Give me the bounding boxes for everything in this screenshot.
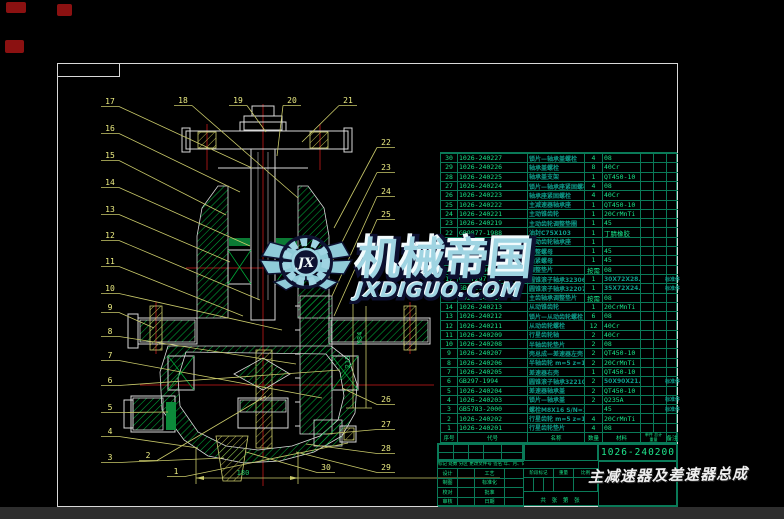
bom-cell: 标准件 (667, 376, 678, 385)
bom-cell: 标准件 (667, 404, 678, 413)
bom-cell: 1 (585, 367, 603, 376)
bom-cell: 4 (585, 413, 603, 422)
bom-cell: 40Cr (603, 330, 641, 339)
bom-cell: 30X72X28.75 (603, 274, 641, 283)
callout-16: 16 (105, 124, 115, 133)
bom-cell: 轴承座紧固螺栓 (528, 190, 585, 199)
watermark: JX 机械帝国 机械帝国 机械帝国 JXDIGUO.COM JXDIGUO.CO… (252, 220, 570, 304)
bom-cell: 11 (441, 330, 458, 339)
logo-monogram: JX (295, 256, 315, 271)
bom-cell (641, 200, 654, 209)
callout-28: 28 (381, 444, 391, 453)
bom-cell: 1 (585, 302, 603, 311)
bom-cell (654, 423, 667, 432)
bom-cell: 08 (603, 339, 641, 348)
bom-cell: GB297-1994 (458, 376, 528, 385)
bom-cell: 名称 (528, 432, 585, 442)
bom-cell (641, 358, 654, 367)
bom-cell: 材料 (603, 432, 641, 442)
bom-cell: 行星齿轮轴 (528, 330, 585, 339)
bom-cell: 主减速器轴承座 (528, 200, 585, 209)
bom-cell: GB5783-2000 (458, 404, 528, 413)
bom-cell: 轴承盖支架 (528, 172, 585, 181)
bom-cell: 1026-240227 (458, 153, 528, 162)
bom-cell (641, 413, 654, 422)
callout-19: 19 (233, 96, 243, 105)
bom-cell (667, 237, 678, 246)
bom-cell (654, 200, 667, 209)
title-block-field: 标准化 (475, 479, 505, 489)
bom-cell: 27 (441, 181, 458, 190)
bom-cell: 45 (603, 218, 641, 227)
bom-cell (641, 339, 654, 348)
bom-cell (667, 302, 678, 311)
bom-cell (667, 246, 678, 255)
bom-cell (667, 265, 678, 274)
winged-gear-logo: JX (260, 237, 352, 290)
bom-cell (654, 311, 667, 320)
bom-cell (654, 358, 667, 367)
bom-cell: 20CrMnTi (603, 209, 641, 218)
bom-cell: 40Cr (603, 320, 641, 329)
bom-cell (654, 348, 667, 357)
bom-cell (654, 237, 667, 246)
bom-cell: 6 (585, 311, 603, 320)
bom-cell: 45 (603, 246, 641, 255)
bom-cell: 半轴齿轮垫片 (528, 339, 585, 348)
bom-cell: 08 (603, 265, 641, 274)
bom-cell: 1 (585, 237, 603, 246)
bom-cell (641, 181, 654, 190)
bom-cell: 行星齿轮垫片 (528, 423, 585, 432)
bom-cell: 1026-240212 (458, 311, 528, 320)
bom-cell (641, 302, 654, 311)
callout-5: 5 (108, 403, 113, 412)
bom-cell (641, 190, 654, 199)
bom-cell: 26 (441, 190, 458, 199)
bom-cell: 1 (585, 227, 603, 236)
bom-cell: 12 (585, 320, 603, 329)
bom-cell: 1026-240207 (458, 348, 528, 357)
weight-label: 重量 (554, 469, 574, 478)
callout-23: 23 (381, 163, 391, 172)
bom-cell (667, 227, 678, 236)
bom-cell: 标准件 (667, 283, 678, 292)
bom-cell (654, 209, 667, 218)
bom-cell (654, 255, 667, 264)
bom-cell (654, 367, 667, 376)
bom-cell: 4 (585, 153, 603, 162)
bom-cell (654, 265, 667, 274)
bom-cell: 1 (585, 172, 603, 181)
bom-cell (654, 227, 667, 236)
title-block-field (458, 498, 475, 508)
bom-cell: 锁片—轴承座紧固螺栓 (528, 181, 585, 190)
bom-cell (641, 227, 654, 236)
bom-cell (654, 172, 667, 181)
callout-6: 6 (108, 376, 113, 385)
callout-26: 26 (381, 395, 391, 404)
bom-cell: 12 (441, 320, 458, 329)
title-block-field: 校对 (438, 488, 458, 498)
bom-cell: 1026-240204 (458, 386, 528, 395)
bom-cell (641, 274, 654, 283)
title-block-field (458, 488, 475, 498)
bom-cell (654, 190, 667, 199)
callout-22: 22 (381, 138, 391, 147)
bom-cell: 29 (441, 162, 458, 171)
bom-cell (667, 367, 678, 376)
bom-cell: 数量 (585, 432, 603, 442)
bom-cell (641, 348, 654, 357)
callout-3: 3 (108, 453, 113, 462)
title-block-field: 批准 (475, 488, 505, 498)
bom-cell (654, 320, 667, 329)
bom-cell (667, 200, 678, 209)
stage-weight-scale: 阶段标记 重量 比例 共 张 第 张 (524, 468, 598, 507)
bom-cell: 1026-240209 (458, 330, 528, 339)
bom-cell: 1026-240224 (458, 181, 528, 190)
bom-cell: 序号 (441, 432, 458, 442)
bom-cell: 2 (585, 339, 603, 348)
bom-cell (641, 265, 654, 274)
bom-cell: 轴承盖螺栓 (528, 162, 585, 171)
bom-cell: 螺栓M8X16 S/N=13 (528, 404, 585, 413)
callout-20: 20 (287, 96, 297, 105)
bom-cell: 40Cr (603, 190, 641, 199)
bom-cell: 差速器轴承盖 (528, 386, 585, 395)
cad-screenshot: 180 M84 215 1716151413121110987654321181… (0, 0, 784, 519)
callout-2: 2 (146, 451, 151, 460)
dim-side-a: M84 (356, 332, 364, 345)
bom-cell (641, 153, 654, 162)
bom-cell: 代号 (458, 432, 528, 442)
bom-cell (667, 339, 678, 348)
signature-rows: 设计工艺制图标准化校对批准审核日期 (438, 468, 524, 507)
callout-24: 24 (381, 187, 391, 196)
bom-cell: 3 (441, 404, 458, 413)
bom-cell: 1026-240221 (458, 209, 528, 218)
bom-cell: 2 (585, 330, 603, 339)
bom-cell (667, 311, 678, 320)
bom-cell: 1 (585, 209, 603, 218)
bom-cell (667, 218, 678, 227)
revision-grid (438, 444, 524, 461)
bom-cell: 9 (441, 348, 458, 357)
bom-cell: 1 (585, 255, 603, 264)
callout-18: 18 (178, 96, 188, 105)
title-block-field (505, 498, 524, 508)
bom-cell: 圆锥滚子轴承32210 (528, 376, 585, 385)
bom-cell (667, 153, 678, 162)
callout-17: 17 (105, 97, 115, 106)
bom-cell: 4 (441, 395, 458, 404)
bom-cell (641, 376, 654, 385)
bom-cell: 1026-240225 (458, 172, 528, 181)
bom-cell (654, 330, 667, 339)
bom-cell (654, 162, 667, 171)
bom-cell (641, 320, 654, 329)
bom-cell: 1026-240208 (458, 339, 528, 348)
bom-cell: 28 (441, 172, 458, 181)
bom-cell (641, 311, 654, 320)
bom-cell: 24 (441, 209, 458, 218)
bom-cell: 2 (585, 395, 603, 404)
bom-cell: 2 (441, 413, 458, 422)
bom-cell: 8 (441, 358, 458, 367)
title-block-field: 审核 (438, 498, 458, 508)
product-title: 主减速器及差速器总成 (588, 462, 768, 487)
bom-cell: QT450-10 (603, 367, 641, 376)
bom-cell: 1026-240222 (458, 200, 528, 209)
bom-cell: 6 (441, 376, 458, 385)
bom-cell (641, 404, 654, 413)
callout-4: 4 (108, 427, 113, 436)
title-block-field: 工艺 (475, 469, 505, 479)
bom-cell (641, 367, 654, 376)
bom-cell (641, 237, 654, 246)
bom-cell: 20CrMnTi (603, 358, 641, 367)
callout-10: 10 (105, 284, 115, 293)
bom-cell: 行星齿轮 m=5 z=10 (528, 413, 585, 422)
bom-cell (667, 348, 678, 357)
bom-cell: 4 (585, 181, 603, 190)
bom-cell: 半轴齿轮 m=5 z=16 (528, 358, 585, 367)
callout-29: 29 (381, 463, 391, 472)
bom-cell: 7 (441, 367, 458, 376)
bom-cell (654, 386, 667, 395)
dim-180: 180 (237, 469, 250, 477)
title-block-field: 设计 (438, 469, 458, 479)
bom-cell (641, 172, 654, 181)
bom-cell: 30 (441, 153, 458, 162)
bom-cell (667, 162, 678, 171)
bom-cell: 丁腈橡胶 (603, 227, 641, 236)
callout-27: 27 (381, 420, 391, 429)
callout-9: 9 (108, 303, 113, 312)
bom-cell (667, 320, 678, 329)
bom-cell: 1 (585, 274, 603, 283)
bom-cell: 5 (441, 386, 458, 395)
bom-cell (667, 209, 678, 218)
bom-cell: 1 (441, 423, 458, 432)
bom-cell: 1026-240206 (458, 358, 528, 367)
bom-cell: 按需 (585, 293, 603, 302)
bom-cell: 主动锥齿轮 (528, 209, 585, 218)
bom-cell (654, 413, 667, 422)
ring-gear (295, 296, 332, 434)
bom-cell (654, 246, 667, 255)
callout-12: 12 (105, 231, 115, 240)
title-block-field: 制图 (438, 479, 458, 489)
bom-cell (654, 293, 667, 302)
bom-cell: 1 (585, 246, 603, 255)
bom-cell (667, 386, 678, 395)
bom-cell: 1026-240202 (458, 413, 528, 422)
callout-7: 7 (108, 351, 113, 360)
bom-cell: 45 (603, 404, 641, 413)
bom-cell: 2 (585, 386, 603, 395)
bom-cell (654, 339, 667, 348)
bom-cell (654, 218, 667, 227)
carrier-flange (128, 306, 430, 350)
bom-cell: QT450-10 (603, 200, 641, 209)
bom-cell: 差速器右壳 (528, 367, 585, 376)
bom-cell: 13 (441, 311, 458, 320)
drawing-number: 1026-240200 (598, 444, 678, 461)
bom-cell: 8 (585, 162, 603, 171)
callout-1: 1 (174, 467, 179, 476)
title-block-field (458, 479, 475, 489)
bom-cell: 10 (441, 339, 458, 348)
bom-cell: 1026-240205 (458, 367, 528, 376)
bom-cell: 25 (441, 200, 458, 209)
callout-21: 21 (343, 96, 353, 105)
bom-cell: 45 (603, 255, 641, 264)
bom-cell: 锁片—轴承盖 (528, 395, 585, 404)
bom-cell (641, 395, 654, 404)
stage-label: 阶段标记 (524, 469, 554, 478)
watermark-text: 机械帝国 机械帝国 机械帝国 JXDIGUO.COM JXDIGUO.COM J… (349, 231, 537, 303)
bom-cell (654, 302, 667, 311)
bom-cell: 2 (585, 348, 603, 357)
bom-cell: QT450-10 (603, 386, 641, 395)
bom-cell: 2 (585, 358, 603, 367)
bom-cell: 50X90X21.75 (603, 376, 641, 385)
bom-cell (641, 293, 654, 302)
bom-cell: 1026-240226 (458, 162, 528, 171)
callout-15: 15 (105, 151, 115, 160)
bom-cell: QT450-10 (603, 348, 641, 357)
bom-cell: 按需 (585, 265, 603, 274)
bom-cell (641, 246, 654, 255)
bom-cell (667, 190, 678, 199)
bom-cell (641, 423, 654, 432)
title-block-field (505, 469, 524, 479)
bom-cell: 锁片—从动齿轮螺栓 (528, 311, 585, 320)
bom-cell: QT450-10 (603, 172, 641, 181)
bom-cell (654, 153, 667, 162)
bom-cell (667, 413, 678, 422)
callout-8: 8 (108, 327, 113, 336)
bom-cell (641, 283, 654, 292)
bom-cell (641, 386, 654, 395)
bom-cell (603, 237, 641, 246)
title-block-field (505, 479, 524, 489)
bom-cell: 08 (603, 181, 641, 190)
bom-cell: 标准件 (667, 274, 678, 283)
bottom-strip (0, 507, 784, 519)
callout-11: 11 (105, 257, 115, 266)
bom-cell: 壳总成—差速器左壳 (528, 348, 585, 357)
callout-25: 25 (381, 210, 391, 219)
bom-cell: 2 (585, 376, 603, 385)
bom-cell (641, 209, 654, 218)
revision-note-row: 标记 处数 分区 更改文件号 签名 年、月、日 (438, 461, 524, 468)
bom-cell: 20CrMnTi (603, 302, 641, 311)
bom-cell: 标准件 (667, 395, 678, 404)
bom-cell (667, 255, 678, 264)
watermark-site: JXDIGUO.COM (350, 278, 523, 302)
callout-30: 30 (321, 463, 331, 472)
sheet-corner-box (58, 64, 120, 77)
bom-cell: 从动齿轮螺栓 (528, 320, 585, 329)
bom-cell: 1026-240201 (458, 423, 528, 432)
bom-cell: 35X72X24.25 (603, 283, 641, 292)
bom-cell: Q235A (603, 395, 641, 404)
bom-cell (667, 181, 678, 190)
bom-cell (641, 162, 654, 171)
bom-cell: 08 (603, 153, 641, 162)
bom-cell: 08 (603, 311, 641, 320)
bom-cell: 锁片—轴承盖螺栓 (528, 153, 585, 162)
bom-cell (654, 181, 667, 190)
bom-cell: 20CrMnTi (603, 413, 641, 422)
bom-cell: 1 (585, 200, 603, 209)
bom-cell: 1 (585, 283, 603, 292)
sheet-count: 共 张 第 张 (524, 492, 598, 508)
bom-cell (641, 330, 654, 339)
title-block-field: 日期 (475, 498, 505, 508)
bom-cell: 1 (585, 218, 603, 227)
bom-cell (667, 423, 678, 432)
bom-cell (667, 293, 678, 302)
bom-cell (667, 330, 678, 339)
bom-cell: 备注 (667, 432, 678, 442)
bom-cell (641, 218, 654, 227)
callout-13: 13 (105, 205, 115, 214)
dim-side-b: 215 (344, 356, 352, 369)
bom-cell: 08 (603, 293, 641, 302)
bom-cell: 单件 总计重量 (641, 432, 667, 442)
bom-cell (667, 358, 678, 367)
title-block-field (458, 469, 475, 479)
bom-cell: 4 (585, 423, 603, 432)
bom-cell: 1026-240203 (458, 395, 528, 404)
bom-cell: 40Cr (603, 162, 641, 171)
bom-cell: 1026-240211 (458, 320, 528, 329)
title-block-empty-box (524, 444, 598, 461)
bom-cell: 1026-240223 (458, 190, 528, 199)
bom-cell (585, 404, 603, 413)
bom-cell (667, 172, 678, 181)
bom-cell (641, 255, 654, 264)
bom-cell: 4 (585, 190, 603, 199)
callout-14: 14 (105, 178, 115, 187)
title-block-field (505, 488, 524, 498)
bom-cell: 08 (603, 423, 641, 432)
